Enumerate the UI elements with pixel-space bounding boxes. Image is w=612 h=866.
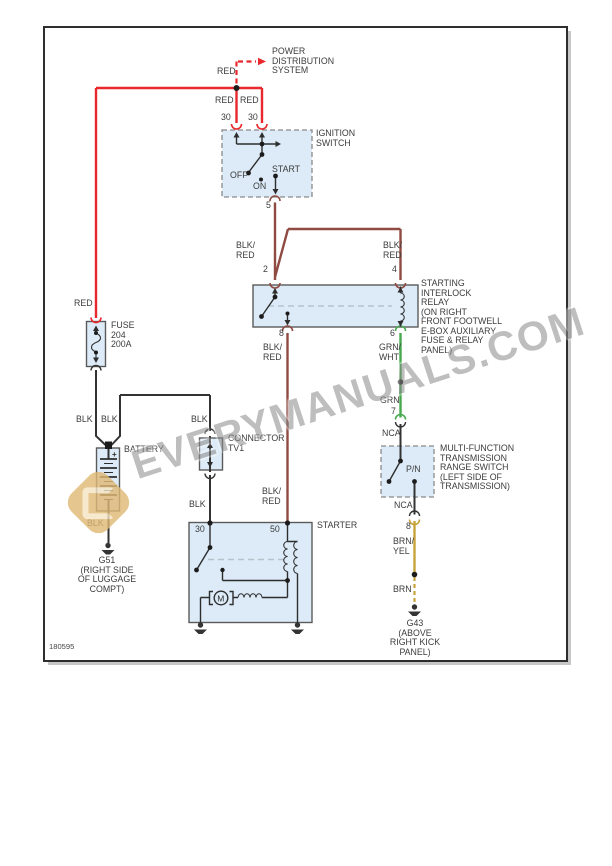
label-pin-5: 5 [266,201,271,211]
doc-number: 180595 [49,642,74,652]
label-pin-2: 2 [263,265,268,275]
label-on: ON [253,182,266,192]
label-start: START [272,165,300,175]
wiring-diagram-page: + M [0,0,612,866]
label-pin-8-relay: 8 [279,329,284,339]
label-pin-50-starter: 50 [270,525,280,535]
label-connector-name: CONNECTOR TV1 [228,434,285,453]
label-brn-yel: BRN/ YEL [393,537,414,556]
label-blkred-pin4: BLK/ RED [383,241,402,260]
label-mft-name: MULTI-FUNCTION TRANSMISSION RANGE SWITCH… [440,444,514,492]
label-blk-branch: BLK [191,415,208,425]
label-g51: G51 (RIGHT SIDE OF LUGGAGE COMPT) [72,556,142,594]
label-nca-top: NCA [382,429,401,439]
label-starter: STARTER [317,521,357,531]
label-red-30b: RED [240,96,259,106]
label-blkred-pin50: BLK/ RED [263,343,282,362]
label-ignition-switch: IGNITION SWITCH [316,129,355,148]
label-off: OFF [230,171,248,181]
label-pin-30a: 30 [221,113,231,123]
label-pin-7: 7 [391,407,396,417]
label-pin-30-starter: 30 [195,525,205,535]
label-battery: BATTERY [124,445,164,455]
label-blk-gnd: BLK [87,519,104,529]
label-red-feed: RED [217,67,236,77]
label-relay-name: STARTING INTERLOCK RELAY (ON RIGHT FRONT… [421,279,502,355]
label-red-fuse: RED [74,299,93,309]
label-blk-batt: BLK [101,415,118,425]
label-grn: GRN [380,396,400,406]
label-blk-conn-low: BLK [189,500,206,510]
label-red-30a: RED [215,96,234,106]
label-fuse-name: FUSE 204 200A [111,321,134,350]
label-pin-6: 6 [390,329,395,339]
label-grn-wht: GRN/ WHT [379,343,401,362]
label-power-distribution: POWER DISTRIBUTION SYSTEM [272,47,334,76]
label-nca-bottom: NCA [394,501,413,511]
label-blkred-pin2: BLK/ RED [236,241,255,260]
label-brn: BRN [393,585,412,595]
label-pn: P/N [406,465,421,475]
label-g43: G43 (ABOVE RIGHT KICK PANEL) [386,619,444,657]
label-pin-8-mft: 8 [406,522,411,532]
label-pin-4: 4 [392,265,397,275]
label-blkred-starter: BLK/ RED [262,487,281,506]
label-pin-30b: 30 [248,113,258,123]
label-blk-fuse: BLK [76,415,93,425]
